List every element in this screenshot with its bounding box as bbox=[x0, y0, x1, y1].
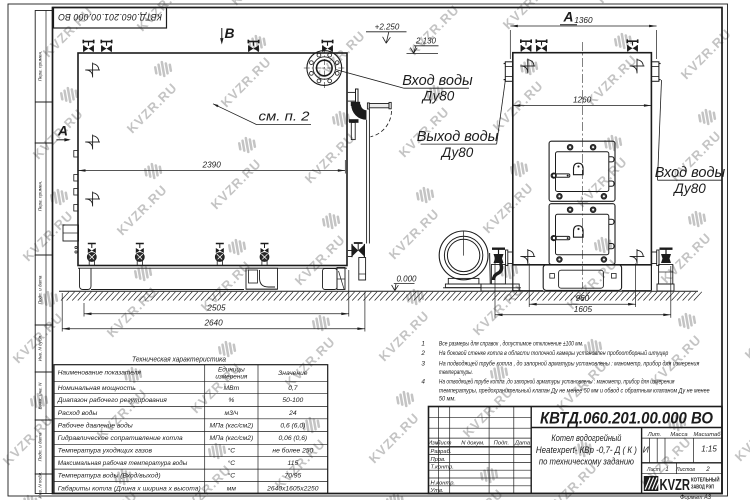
svg-text:2: 2 bbox=[705, 466, 710, 473]
svg-text:2.130: 2.130 bbox=[415, 37, 437, 46]
svg-text:Взам. инв. N: Взам. инв. N bbox=[38, 382, 43, 409]
svg-text:KVZR.RU: KVZR.RU bbox=[742, 306, 750, 362]
svg-text:KVZR.RU: KVZR.RU bbox=[594, 0, 650, 6]
svg-text:KVZR.RU: KVZR.RU bbox=[282, 334, 338, 390]
svg-text:Номинальная мощность: Номинальная мощность bbox=[58, 385, 137, 392]
svg-text:0,06 (0,6): 0,06 (0,6) bbox=[279, 435, 308, 442]
svg-text:Подп. и дата: Подп. и дата bbox=[38, 275, 43, 304]
svg-text:Пров.: Пров. bbox=[431, 457, 446, 463]
svg-text:КВТД.060.201.00.000 ВО: КВТД.060.201.00.000 ВО bbox=[540, 409, 713, 427]
svg-text:температуры, предохранительный: температуры, предохранительный клапан Ду… bbox=[439, 387, 710, 395]
svg-text:На боковой стенке котла в обла: На боковой стенке котла в области топочн… bbox=[439, 349, 669, 357]
svg-text:70/95: 70/95 bbox=[284, 473, 301, 480]
svg-text:KVZR.RU: KVZR.RU bbox=[500, 0, 556, 32]
svg-text:°С: °С bbox=[228, 446, 236, 454]
svg-text:КОТЕЛЬНЫЙ: КОТЕЛЬНЫЙ bbox=[691, 476, 720, 484]
svg-text:4: 4 bbox=[421, 378, 425, 385]
svg-text:Габариты котла (Длина х ширина: Габариты котла (Длина х ширина х высота) bbox=[58, 484, 201, 492]
svg-text:KVZR.RU: KVZR.RU bbox=[104, 284, 160, 340]
svg-text:KVZR.RU: KVZR.RU bbox=[114, 182, 170, 238]
svg-text:Инв. N подл.: Инв. N подл. bbox=[38, 472, 43, 499]
svg-text:+2.250: +2.250 bbox=[375, 23, 400, 32]
svg-text:24: 24 bbox=[288, 410, 297, 417]
svg-text:%: % bbox=[228, 397, 234, 404]
svg-text:0,7: 0,7 bbox=[288, 385, 298, 392]
svg-text:KVZR.RU: KVZR.RU bbox=[406, 2, 462, 58]
svg-text:1: 1 bbox=[665, 466, 668, 473]
svg-text:Выход воды: Выход воды bbox=[417, 129, 499, 145]
svg-text:И: И bbox=[643, 444, 650, 454]
svg-text:°С: °С bbox=[228, 472, 236, 480]
svg-text:1: 1 bbox=[421, 340, 425, 347]
svg-text:Масса: Масса bbox=[670, 432, 688, 438]
svg-text:1360: 1360 bbox=[574, 16, 593, 25]
svg-text:Формат А3: Формат А3 bbox=[680, 494, 711, 500]
svg-text:50-100: 50-100 bbox=[282, 397, 303, 404]
svg-text:KVZR.RU: KVZR.RU bbox=[386, 206, 442, 262]
svg-text:Расход воды: Расход воды bbox=[58, 409, 98, 417]
svg-text:Heatexpert- КВр -0,7- Д ( К ): Heatexpert- КВр -0,7- Д ( К ) bbox=[536, 445, 637, 455]
svg-text:Лист: Лист bbox=[646, 467, 660, 473]
svg-text:1260: 1260 bbox=[573, 96, 592, 105]
svg-text:Лист: Лист bbox=[436, 440, 452, 446]
svg-text:температуры.: температуры. bbox=[439, 369, 473, 376]
svg-text:м3/ч: м3/ч bbox=[225, 410, 239, 417]
svg-text:см. п. 2: см. п. 2 bbox=[259, 109, 311, 124]
svg-text:1:15: 1:15 bbox=[701, 445, 717, 454]
svg-text:2: 2 bbox=[420, 350, 425, 357]
svg-text:KVZR.RU: KVZR.RU bbox=[20, 208, 76, 264]
svg-text:Ду80: Ду80 bbox=[421, 89, 455, 104]
svg-text:МПа (кгс/см2): МПа (кгс/см2) bbox=[210, 435, 254, 442]
svg-text:KVZR.RU: KVZR.RU bbox=[366, 410, 422, 466]
svg-text:МПа (кгс/см2): МПа (кгс/см2) bbox=[210, 423, 254, 430]
svg-text:Единицы: Единицы bbox=[218, 366, 245, 374]
svg-text:Вход воды: Вход воды bbox=[402, 73, 473, 89]
svg-text:Диапазон рабочего регулировани: Диапазон рабочего регулирования bbox=[57, 396, 168, 404]
svg-text:Масштаб: Масштаб bbox=[693, 432, 721, 438]
svg-text:А: А bbox=[563, 10, 574, 25]
svg-text:N докум.: N докум. bbox=[461, 440, 484, 446]
svg-text:Подп. и дата: Подп. и дата bbox=[38, 432, 43, 461]
svg-text:не более 250: не более 250 bbox=[272, 446, 313, 454]
svg-text:KVZR.RU: KVZR.RU bbox=[584, 52, 640, 108]
svg-text:0,6 (6,0): 0,6 (6,0) bbox=[280, 423, 305, 430]
svg-text:ЗАВОД РЭП: ЗАВОД РЭП bbox=[691, 485, 714, 491]
svg-text:KVZR.RU: KVZR.RU bbox=[302, 130, 358, 186]
svg-text:Значение: Значение bbox=[278, 370, 308, 377]
svg-text:KVZR.RU: KVZR.RU bbox=[480, 180, 536, 236]
svg-text:Наименование показателя: Наименование показателя bbox=[58, 369, 142, 376]
svg-text:Перв. примен.: Перв. примен. bbox=[38, 51, 43, 82]
svg-text:мм: мм bbox=[227, 485, 237, 492]
svg-text:Котел водогрейный: Котел водогрейный bbox=[551, 433, 621, 443]
svg-text:2640х1605х2250: 2640х1605х2250 bbox=[266, 485, 319, 492]
svg-text:KVZR.RU: KVZR.RU bbox=[94, 386, 150, 442]
svg-text:3: 3 bbox=[421, 360, 425, 367]
svg-text:Температура уходящих газов: Температура уходящих газов bbox=[58, 446, 153, 454]
svg-text:Дата: Дата bbox=[514, 440, 531, 446]
svg-text:115: 115 bbox=[288, 460, 299, 467]
svg-text:МВт: МВт bbox=[224, 385, 240, 392]
svg-text:Ду80: Ду80 bbox=[440, 145, 474, 160]
svg-text:На отводящей трубе котла ,до з: На отводящей трубе котла ,до запорной ар… bbox=[439, 377, 675, 385]
svg-text:Гидравлическое сопративление к: Гидравлическое сопративление котла bbox=[58, 434, 183, 442]
svg-text:2640: 2640 bbox=[203, 319, 223, 328]
svg-text:измерения: измерения bbox=[215, 373, 248, 380]
svg-text:Т.контр.: Т.контр. bbox=[431, 465, 454, 471]
svg-text:Утв.: Утв. bbox=[430, 488, 444, 494]
svg-text:Вход воды: Вход воды bbox=[655, 165, 726, 181]
svg-text:KVZR.RU: KVZR.RU bbox=[292, 232, 348, 288]
svg-text:KVZR.RU: KVZR.RU bbox=[124, 80, 180, 136]
svg-text:по техническому заданию: по техническому заданию bbox=[539, 457, 634, 467]
svg-text:1605: 1605 bbox=[574, 305, 593, 314]
svg-text:Инв. N дубл.: Инв. N дубл. bbox=[38, 335, 43, 362]
svg-text:Разраб.: Разраб. bbox=[431, 449, 452, 455]
svg-text:0.000: 0.000 bbox=[396, 275, 417, 284]
svg-text:Температура воды (Вход/выход): Температура воды (Вход/выход) bbox=[58, 472, 161, 480]
svg-text:А: А bbox=[57, 124, 68, 139]
svg-text:KVZR.RU: KVZR.RU bbox=[732, 408, 750, 464]
svg-text:Ду80: Ду80 bbox=[672, 181, 706, 196]
svg-text:2390: 2390 bbox=[202, 161, 222, 170]
svg-text:Техническая характеристика: Техническая характеристика bbox=[132, 357, 226, 364]
svg-text:Рабочее давление воды: Рабочее давление воды bbox=[58, 422, 133, 430]
svg-text:960: 960 bbox=[576, 294, 590, 303]
svg-text:Лит.: Лит. bbox=[647, 432, 662, 438]
svg-text:KVZR.RU: KVZR.RU bbox=[218, 54, 274, 110]
svg-text:Н.контр.: Н.контр. bbox=[431, 480, 456, 486]
svg-text:На подводящей трубе котла ,: На подводящей трубе котла , до запорной … bbox=[439, 359, 700, 367]
svg-text:50 мм.: 50 мм. bbox=[439, 395, 456, 402]
svg-text:В: В bbox=[225, 26, 235, 41]
svg-text:Перв. примен.: Перв. примен. bbox=[38, 181, 43, 212]
svg-text:KVZR.RU: KVZR.RU bbox=[0, 30, 2, 86]
svg-text:KVZR: KVZR bbox=[660, 477, 691, 494]
svg-text:Максимальная рабочая температу: Максимальная рабочая температура воды bbox=[58, 459, 188, 467]
svg-text:КВТД.060.201.00.000 ВО: КВТД.060.201.00.000 ВО bbox=[58, 12, 162, 22]
svg-text:Все размеры для справок , допу: Все размеры для справок , допустимое отк… bbox=[439, 339, 584, 347]
svg-text:2505: 2505 bbox=[206, 304, 226, 313]
svg-text:Листов: Листов bbox=[675, 467, 695, 473]
svg-text:°С: °С bbox=[228, 459, 236, 467]
svg-text:Подп.: Подп. bbox=[494, 440, 509, 446]
svg-text:KVZR.RU: KVZR.RU bbox=[678, 26, 734, 82]
